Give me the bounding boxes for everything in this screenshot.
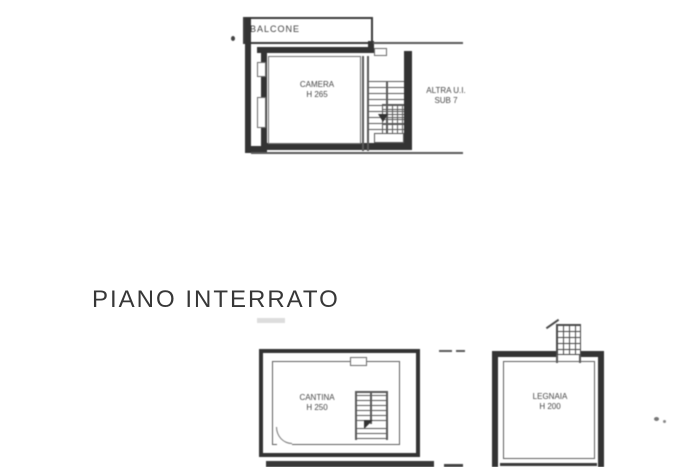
- scan-speck-3: [663, 420, 666, 423]
- cantina-room-name: CANTINA: [287, 393, 347, 403]
- lower-floor-plan: CANTINA H 250 LEGNAIA H 200: [0, 0, 700, 467]
- cantina-stair-lower-treads: [357, 428, 386, 440]
- legnaia-grate-side-right: [579, 355, 581, 363]
- legnaia-grate: [556, 324, 581, 355]
- legnaia-room-height: H 200: [518, 402, 582, 412]
- cantina-cutoff-wall: [266, 461, 434, 467]
- legnaia-wall-right: [598, 351, 604, 467]
- legnaia-room-label: LEGNAIA H 200: [518, 392, 582, 413]
- break-dash-2: [456, 350, 465, 352]
- legnaia-wall-top-left: [492, 351, 557, 357]
- cantina-room-height: H 250: [287, 403, 347, 413]
- legnaia-grate-side-left: [556, 355, 558, 363]
- cantina-room-label: CANTINA H 250: [287, 393, 347, 414]
- cantina-stair-right-rail: [386, 391, 388, 440]
- scan-speck-2: [654, 417, 659, 421]
- legnaia-cutoff-wall: [500, 463, 597, 466]
- break-dash-1: [439, 350, 452, 352]
- scan-smudge: [257, 318, 285, 323]
- floor-plan-sheet: BALCONE CAMERA H 265 ALTR: [0, 0, 700, 467]
- legnaia-room-name: LEGNAIA: [518, 392, 582, 402]
- cantina-door-notch: [350, 357, 367, 366]
- legnaia-wall-left: [492, 351, 498, 467]
